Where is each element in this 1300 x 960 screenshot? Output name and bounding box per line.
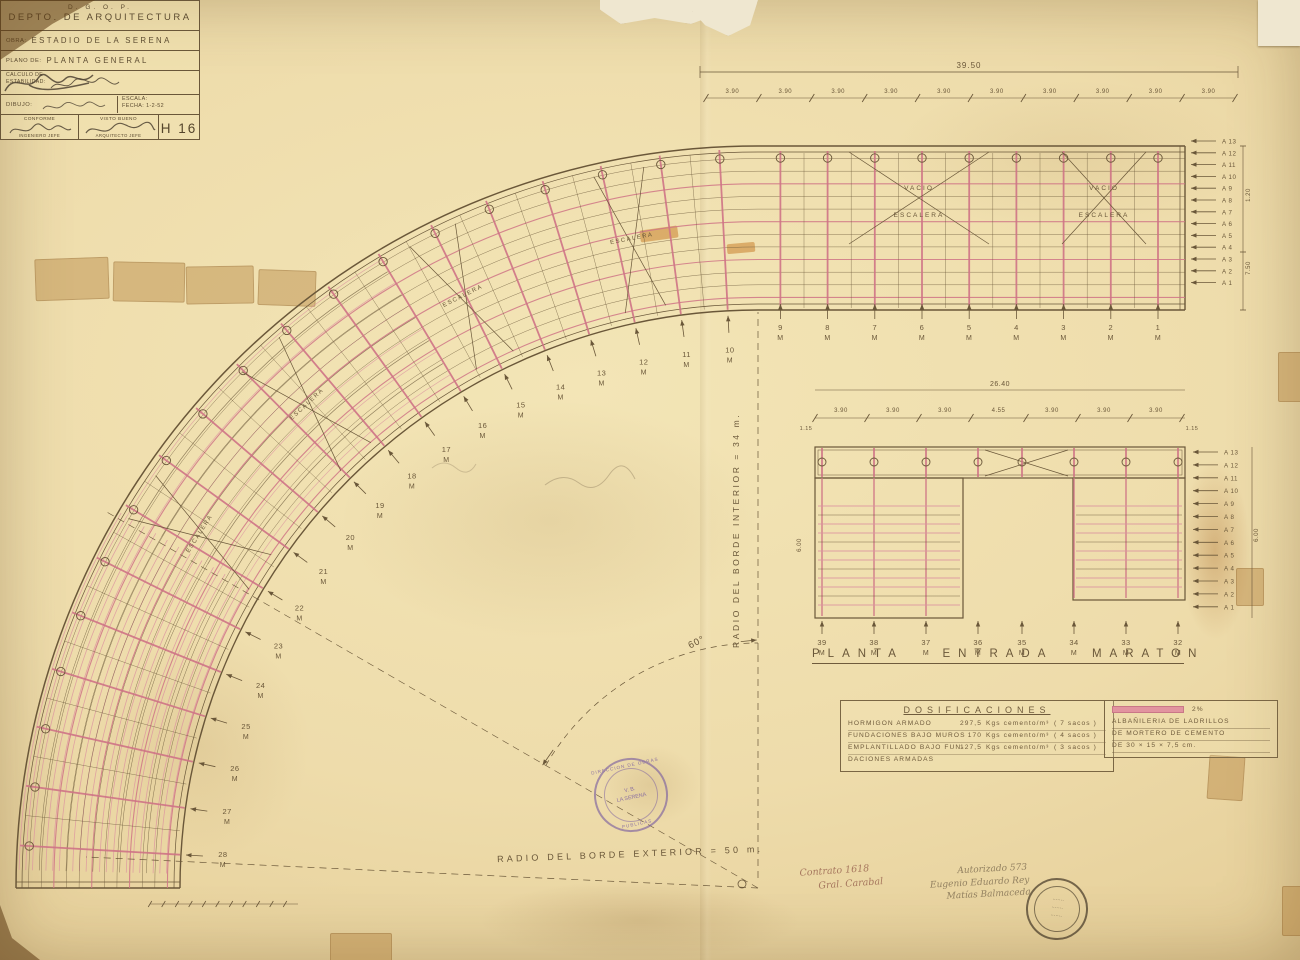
svg-text:6: 6 — [920, 323, 925, 332]
svg-text:ESCALERA: ESCALERA — [442, 284, 484, 309]
handwritten-note: Contrato 1618 Gral. Carabal — [799, 861, 884, 895]
svg-text:3.90: 3.90 — [834, 408, 848, 414]
maraton-plan-title: PLANTA ENTRADA MARATON — [812, 648, 1184, 664]
svg-text:A 7: A 7 — [1222, 209, 1233, 216]
handwritten-note: Autorizado 573 Eugenio Eduardo Rey Matía… — [929, 861, 1031, 904]
signature — [41, 99, 107, 113]
svg-text:A 9: A 9 — [1224, 501, 1235, 508]
stair-void-braces: VACIOESCALERAVACIOESCALERAESCALERAESCALE… — [128, 152, 1146, 589]
dosificaciones-row: HORMIGON ARMADO 297,5 Kgs cemento/m³ ( 7… — [848, 719, 1106, 731]
approval-row: CONFORME INGENIERO JEFE VISTO BUENO ARQU… — [1, 115, 199, 139]
svg-text:A 3: A 3 — [1222, 257, 1233, 264]
svg-text:M: M — [641, 369, 647, 376]
svg-text:M: M — [966, 335, 972, 342]
svg-text:16: 16 — [478, 421, 487, 430]
calculo-row: CALCULO DE ESTABILIDAD: — [1, 71, 199, 95]
svg-text:A 4: A 4 — [1222, 245, 1233, 252]
svg-text:3.90: 3.90 — [886, 408, 900, 414]
svg-text:3.90: 3.90 — [1202, 89, 1216, 95]
svg-text:7.50: 7.50 — [1246, 261, 1252, 275]
svg-text:3.90: 3.90 — [1045, 408, 1059, 414]
svg-text:23: 23 — [274, 641, 283, 650]
svg-text:4: 4 — [1014, 323, 1019, 332]
svg-text:A 5: A 5 — [1222, 233, 1233, 240]
svg-text:A 12: A 12 — [1224, 462, 1238, 469]
svg-text:8: 8 — [825, 323, 830, 332]
svg-text:A 13: A 13 — [1224, 450, 1238, 457]
svg-text:M: M — [1013, 335, 1019, 342]
svg-text:3.90: 3.90 — [726, 89, 740, 95]
svg-text:ESCALERA: ESCALERA — [1079, 212, 1130, 219]
svg-text:M: M — [377, 513, 383, 520]
svg-text:26.40: 26.40 — [990, 381, 1010, 388]
pink-legend-label: 2% — [1192, 706, 1204, 713]
svg-text:34: 34 — [1069, 638, 1078, 647]
svg-text:VACIO: VACIO — [1089, 185, 1119, 192]
svg-text:A 4: A 4 — [1224, 566, 1235, 573]
svg-text:M: M — [919, 335, 925, 342]
svg-text:M: M — [518, 412, 524, 419]
maraton-entrance-plan: 39M38M37M36M35M34M33M32M26.403.903.903.9… — [797, 381, 1260, 657]
svg-text:11: 11 — [682, 350, 691, 359]
svg-text:M: M — [347, 545, 353, 552]
svg-text:A 7: A 7 — [1224, 527, 1235, 534]
dosificaciones-table: DOSIFICACIONES HORMIGON ARMADO 297,5 Kgs… — [840, 700, 1114, 772]
svg-text:28: 28 — [218, 850, 227, 859]
svg-text:39.50: 39.50 — [956, 61, 981, 70]
svg-text:M: M — [296, 615, 302, 622]
svg-text:3.90: 3.90 — [990, 89, 1004, 95]
conforme-cell: CONFORME INGENIERO JEFE — [1, 115, 79, 139]
svg-text:A 8: A 8 — [1224, 514, 1235, 521]
svg-text:5: 5 — [967, 323, 972, 332]
svg-text:VACIO: VACIO — [904, 185, 934, 192]
dosificaciones-row: FUNDACIONES BAJO MUROS 170 Kgs cemento/m… — [848, 731, 1106, 743]
svg-text:ESCALERA: ESCALERA — [894, 212, 945, 219]
svg-text:1.15: 1.15 — [800, 426, 813, 432]
svg-text:A 6: A 6 — [1222, 221, 1233, 228]
svg-text:M: M — [824, 335, 830, 342]
svg-text:14: 14 — [556, 383, 565, 392]
sheet-number: H 16 — [159, 115, 199, 139]
svg-text:A 10: A 10 — [1224, 488, 1238, 495]
svg-text:3.90: 3.90 — [937, 89, 951, 95]
svg-text:9: 9 — [778, 323, 783, 332]
svg-text:M: M — [1155, 335, 1161, 342]
svg-text:A 11: A 11 — [1224, 475, 1238, 482]
svg-text:M: M — [777, 335, 783, 342]
svg-text:2: 2 — [1108, 323, 1113, 332]
svg-text:6.00: 6.00 — [797, 538, 803, 552]
svg-text:1: 1 — [1156, 323, 1161, 332]
svg-text:12: 12 — [639, 357, 648, 366]
svg-text:A 5: A 5 — [1224, 553, 1235, 560]
svg-text:3.90: 3.90 — [938, 408, 952, 414]
svg-text:3.90: 3.90 — [831, 89, 845, 95]
svg-text:A 3: A 3 — [1224, 579, 1235, 586]
axis-arrows-and-labels: 1M2M3M4M5M6M7M8M9M10M11M12M13M14M15M16M1… — [186, 304, 1161, 869]
svg-text:M: M — [480, 433, 486, 440]
svg-text:A 8: A 8 — [1222, 198, 1233, 205]
project-name: ESTADIO DE LA SERENA — [32, 36, 172, 45]
svg-text:M: M — [558, 395, 564, 402]
fecha: FECHA: 1-2-52 — [122, 103, 194, 110]
svg-text:6.00: 6.00 — [1254, 528, 1260, 542]
svg-text:A 13: A 13 — [1222, 139, 1236, 146]
svg-text:3.90: 3.90 — [1043, 89, 1057, 95]
pink-legend: 2% — [1112, 706, 1270, 713]
svg-text:17: 17 — [442, 445, 451, 454]
svg-text:3.90: 3.90 — [1096, 89, 1110, 95]
svg-text:A 9: A 9 — [1222, 186, 1233, 193]
svg-text:32: 32 — [1173, 638, 1182, 647]
pencil-marks — [432, 463, 635, 488]
svg-text:37: 37 — [921, 638, 930, 647]
svg-text:A 1: A 1 — [1224, 604, 1235, 611]
dosificaciones-row: DACIONES ARMADAS — [848, 755, 1106, 766]
svg-text:4.55: 4.55 — [992, 408, 1006, 414]
inner-radius-label: RADIO DEL BORDE INTERIOR = 34 m. — [731, 413, 741, 648]
svg-text:3.90: 3.90 — [884, 89, 898, 95]
svg-text:M: M — [232, 776, 238, 783]
dosificaciones-row: EMPLANTILLADO BAJO FUN- 127,5 Kgs cement… — [848, 743, 1106, 755]
svg-text:M: M — [1060, 335, 1066, 342]
svg-text:M: M — [727, 358, 733, 365]
svg-text:1.20: 1.20 — [1246, 188, 1252, 202]
sheet-name: PLANTA GENERAL — [46, 56, 148, 65]
plano-row: PLANO DE: PLANTA GENERAL — [1, 51, 199, 71]
svg-text:A 12: A 12 — [1222, 150, 1236, 157]
svg-text:15: 15 — [516, 400, 525, 409]
pink-legend-bar — [1112, 706, 1184, 713]
svg-text:M: M — [258, 693, 264, 700]
svg-text:M: M — [243, 734, 249, 741]
dibujo-row: DIBUJO: ESCALA: FECHA: 1-2-52 — [1, 95, 199, 115]
svg-text:3.90: 3.90 — [1149, 408, 1163, 414]
dosificaciones-title: DOSIFICACIONES — [848, 705, 1106, 715]
svg-text:3.90: 3.90 — [778, 89, 792, 95]
svg-text:13: 13 — [597, 368, 606, 377]
svg-text:A 6: A 6 — [1224, 540, 1235, 547]
svg-text:M: M — [409, 484, 415, 491]
svg-text:25: 25 — [241, 722, 250, 731]
svg-text:18: 18 — [407, 472, 416, 481]
svg-text:A 10: A 10 — [1222, 174, 1236, 181]
svg-text:38: 38 — [869, 638, 878, 647]
svg-text:21: 21 — [319, 567, 328, 576]
svg-text:26: 26 — [230, 764, 239, 773]
svg-text:A 1: A 1 — [1222, 280, 1233, 287]
svg-text:33: 33 — [1121, 638, 1130, 647]
svg-text:M: M — [224, 819, 230, 826]
svg-text:M: M — [1108, 335, 1114, 342]
svg-text:A 2: A 2 — [1222, 268, 1233, 275]
svg-text:M: M — [683, 362, 689, 369]
escala-label: ESCALA: — [122, 96, 194, 103]
row-labels: A 13A 12A 11A 10A 9A 8A 7A 6A 5A 4A 3A 2… — [1191, 139, 1252, 311]
svg-text:3.90: 3.90 — [1097, 408, 1111, 414]
svg-text:A 2: A 2 — [1224, 591, 1235, 598]
svg-text:M: M — [599, 380, 605, 387]
svg-text:22: 22 — [295, 603, 304, 612]
drawing-sheet: VACIOESCALERAVACIOESCALERAESCALERAESCALE… — [0, 0, 1300, 960]
svg-text:3: 3 — [1061, 323, 1066, 332]
visto-bueno-cell: VISTO BUENO ARQUITECTO JEFE — [79, 115, 159, 139]
svg-text:39: 39 — [817, 638, 826, 647]
svg-text:35: 35 — [1017, 638, 1026, 647]
svg-text:M: M — [872, 335, 878, 342]
masonry-note: 2% ALBAÑILERIA DE LADRILLOS DE MORTERO D… — [1104, 700, 1278, 758]
svg-text:M: M — [320, 579, 326, 586]
svg-text:24: 24 — [256, 681, 265, 690]
svg-text:10: 10 — [725, 346, 734, 355]
svg-text:19: 19 — [375, 501, 384, 510]
svg-text:A 11: A 11 — [1222, 162, 1236, 169]
svg-text:7: 7 — [872, 323, 877, 332]
svg-text:36: 36 — [973, 638, 982, 647]
svg-text:3.90: 3.90 — [1149, 89, 1163, 95]
svg-text:20: 20 — [346, 533, 355, 542]
torn-paper — [1258, 0, 1300, 46]
svg-text:1.15: 1.15 — [1186, 426, 1199, 432]
svg-text:M: M — [275, 653, 281, 660]
svg-text:27: 27 — [223, 807, 232, 816]
